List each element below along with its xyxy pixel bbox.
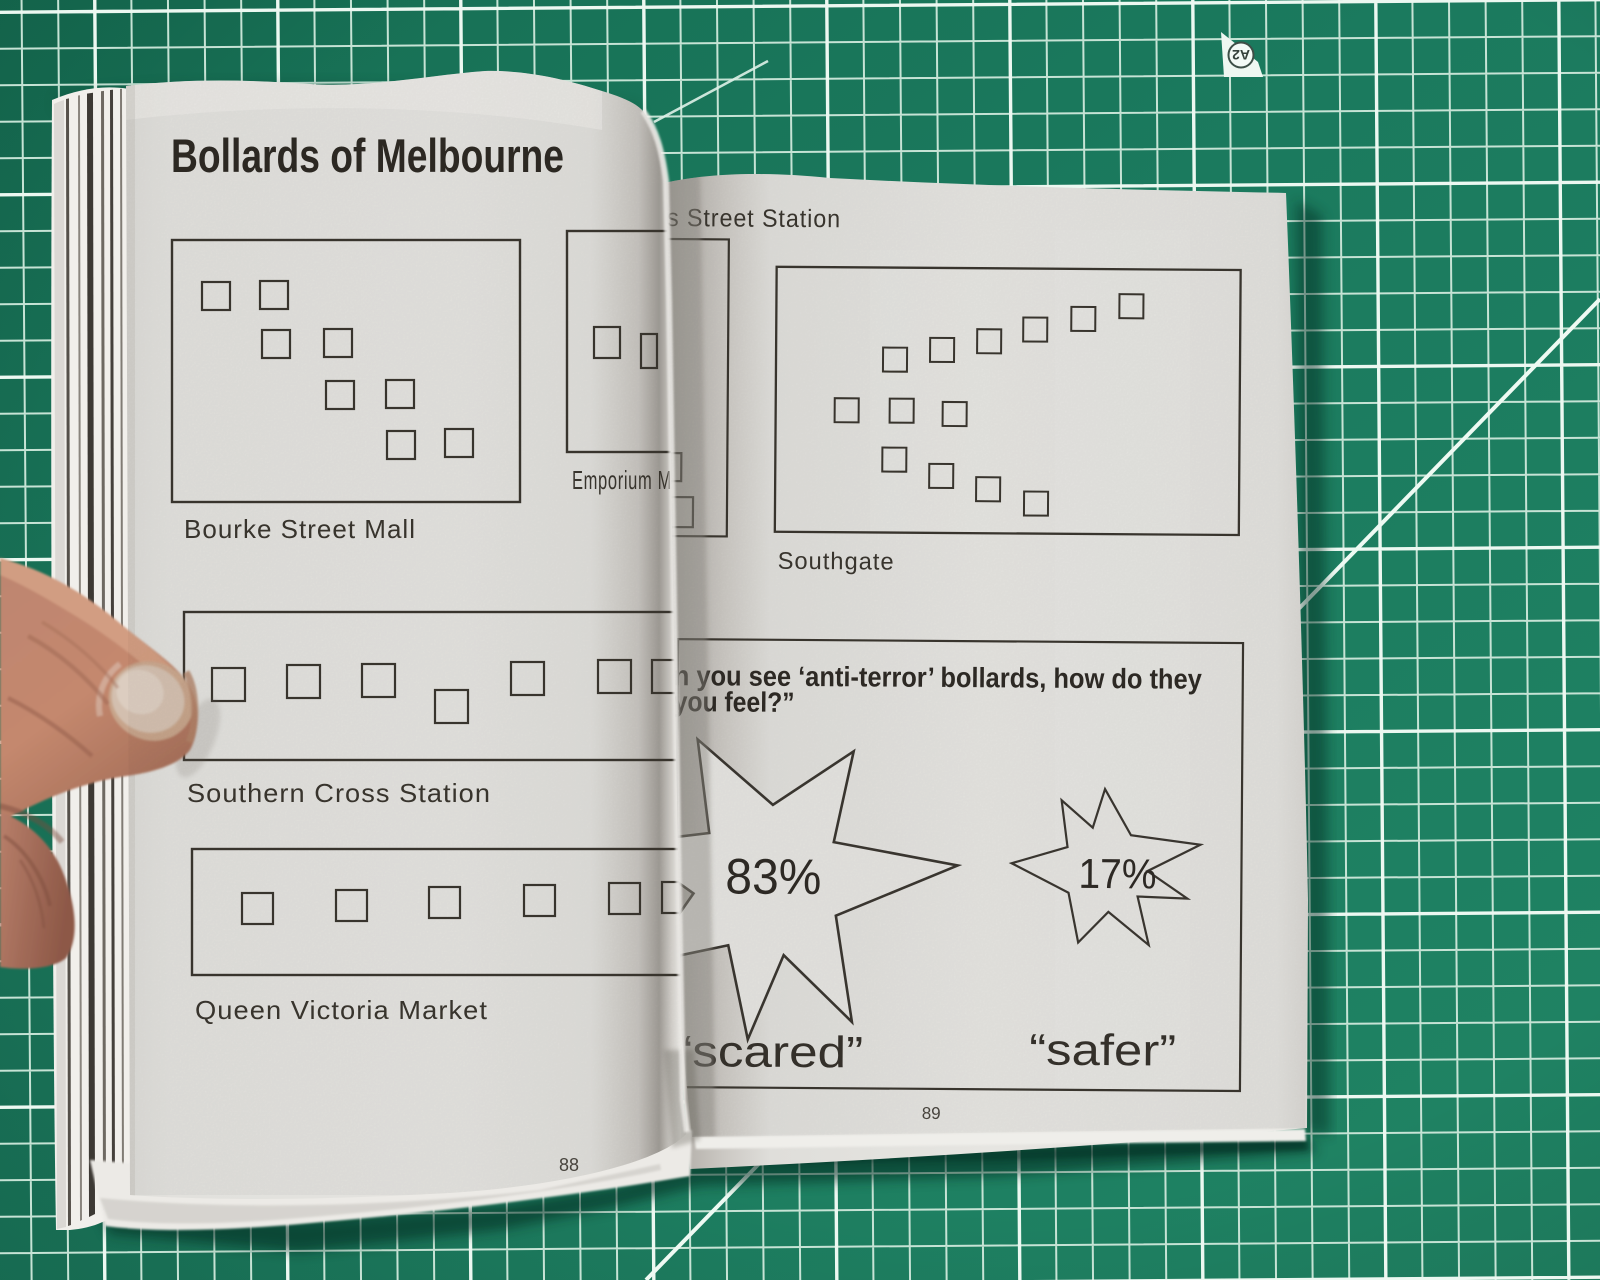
svg-text:A2: A2 (1232, 47, 1250, 63)
